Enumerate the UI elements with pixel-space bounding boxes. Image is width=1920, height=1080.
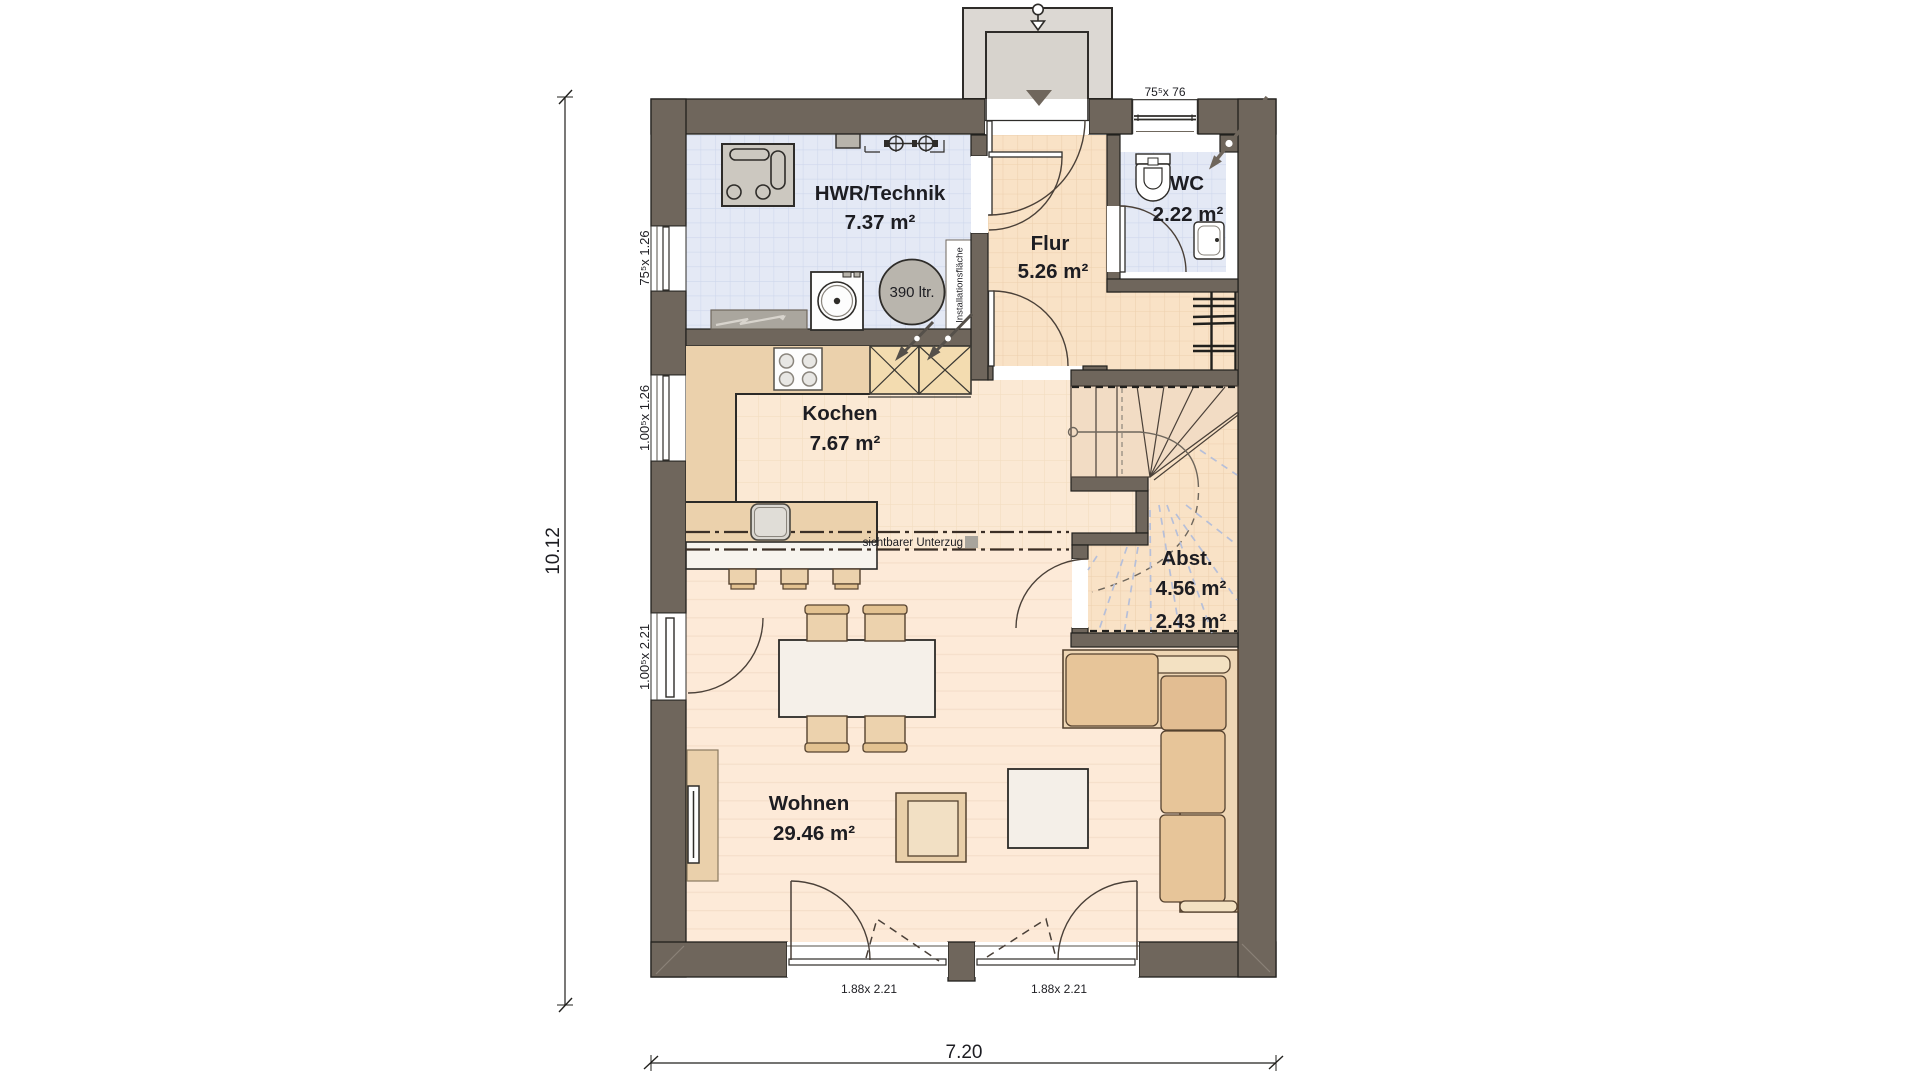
svg-text:75⁵x 1.26: 75⁵x 1.26 [637,230,652,285]
svg-text:4.56 m²: 4.56 m² [1156,577,1227,600]
svg-text:1.00⁵x 1.26: 1.00⁵x 1.26 [637,385,652,451]
svg-text:75⁵x 76: 75⁵x 76 [1144,85,1185,99]
svg-text:7.20: 7.20 [946,1042,983,1063]
svg-text:29.46 m²: 29.46 m² [773,822,855,845]
svg-text:HWR/Technik: HWR/Technik [815,182,946,205]
svg-text:7.37 m²: 7.37 m² [845,211,916,234]
svg-text:Flur: Flur [1031,232,1070,255]
svg-text:1.88x 2.21: 1.88x 2.21 [1031,982,1087,996]
svg-text:1.00⁵x 2.21: 1.00⁵x 2.21 [637,624,652,690]
svg-text:1.88x 2.21: 1.88x 2.21 [841,982,897,996]
svg-text:390 ltr.: 390 ltr. [889,284,934,301]
svg-text:Wohnen: Wohnen [769,792,849,815]
svg-text:Installationsfläche: Installationsfläche [955,247,966,323]
svg-text:WC: WC [1170,172,1204,195]
svg-text:Abst.: Abst. [1161,547,1212,570]
svg-text:Kochen: Kochen [802,402,877,425]
svg-text:2.22 m²: 2.22 m² [1153,203,1224,226]
svg-text:2.43 m²: 2.43 m² [1156,610,1227,633]
svg-text:10.12: 10.12 [543,527,564,575]
svg-text:7.67 m²: 7.67 m² [810,432,881,455]
svg-text:5.26 m²: 5.26 m² [1018,260,1089,283]
svg-text:sichtbarer Unterzug: sichtbarer Unterzug [863,537,963,549]
